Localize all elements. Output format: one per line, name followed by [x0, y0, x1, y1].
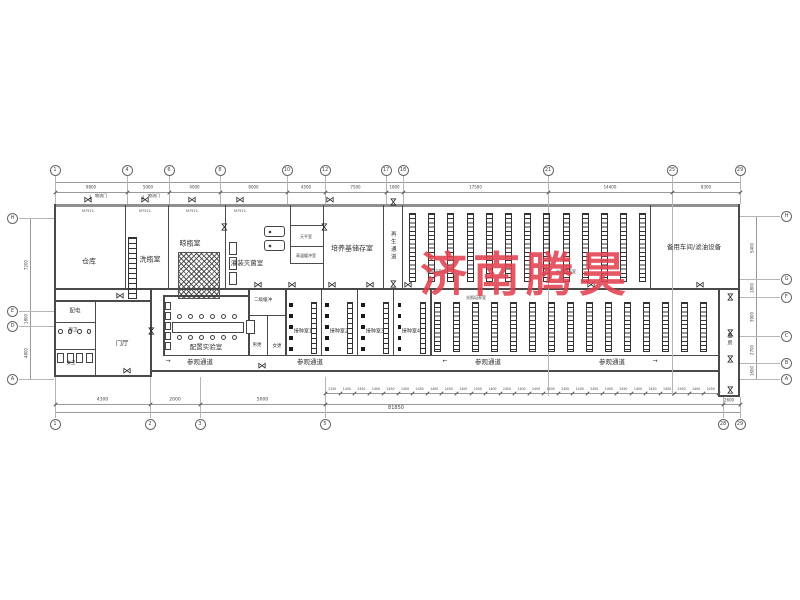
grid-bubble-top: 17	[381, 165, 392, 176]
lab-stool	[232, 314, 237, 319]
floor-plan-canvas: 济南腾昊 仓库 洗瓶室 晾瓶室 灌装灭菌室 天平室 高温缓冲室 培养基储存室 备…	[0, 0, 800, 600]
door-symbol: ⋈	[254, 282, 263, 291]
room-label-warehouse: 仓库	[82, 259, 96, 266]
lab-machine	[246, 320, 255, 334]
dimension-label: 1800	[750, 283, 755, 293]
storage-rack	[605, 302, 612, 352]
dim-tick	[469, 391, 473, 395]
grid-bubble-left: A	[7, 374, 18, 385]
door-symbol: ⋈	[84, 197, 93, 206]
room-label-secondary-buffer: 二级缓冲	[254, 299, 272, 304]
door-symbol: ⋈	[258, 363, 267, 372]
wall	[150, 370, 720, 372]
room-label-mens-toilet: 男卫	[69, 329, 78, 334]
dimension-label: 4000	[189, 185, 199, 190]
drying-area-hatch	[178, 252, 220, 299]
dimension-label: 1400	[634, 387, 642, 391]
dimension-label: 2450	[416, 387, 424, 391]
dimension-label: 8300	[701, 185, 711, 190]
storage-rack	[510, 302, 517, 352]
dimension-bottom-right: 2600	[724, 398, 734, 403]
dimension-label: 2450	[357, 387, 365, 391]
clean-bench	[398, 314, 402, 318]
dim-tick	[367, 391, 371, 395]
room-label-bottle-drying: 晾瓶室	[180, 241, 201, 248]
grid-bubble-top: 10	[282, 165, 293, 176]
grid-line	[19, 311, 54, 312]
dimension-label: 2000	[169, 398, 180, 403]
door-symbol: ⋈	[696, 282, 705, 291]
lab-stool	[221, 314, 226, 319]
grid-line	[200, 377, 201, 418]
grid-bubble-bottom: 5	[320, 419, 331, 430]
wall	[55, 204, 740, 207]
wall	[54, 375, 152, 377]
door-code: M7521	[234, 209, 246, 213]
storage-rack	[548, 302, 555, 352]
dimension-label: 2450	[590, 387, 598, 391]
equipment-panel	[165, 322, 171, 330]
dimension-label: 2450	[678, 387, 686, 391]
grid-bubble-top: 12	[320, 165, 331, 176]
grid-bubble-top: 25	[667, 165, 678, 176]
clean-bench	[398, 336, 402, 340]
door-symbol: ⋈	[123, 368, 132, 377]
storage-rack	[586, 302, 593, 352]
grid-line	[150, 377, 151, 418]
wall	[383, 205, 384, 289]
wall	[168, 205, 169, 289]
lab-stool	[232, 335, 237, 340]
clean-bench	[289, 347, 293, 351]
clean-bench	[325, 314, 329, 318]
grid-line	[740, 379, 780, 380]
annotation-logistics-door-2: 物流门	[148, 194, 160, 198]
dimension-label: 1400	[488, 387, 496, 391]
dimension-label: 2450	[648, 387, 656, 391]
grid-line	[19, 326, 54, 327]
wall	[393, 288, 394, 355]
grid-bubble-left: D	[7, 321, 18, 332]
grid-line	[740, 297, 780, 298]
dim-tick	[600, 391, 604, 395]
room-label-inoculation-1: 接种室1	[294, 330, 312, 335]
room-label-medium-storage: 培养基储存室	[331, 246, 373, 253]
door-code: M7521	[139, 209, 151, 213]
door-symbol: ⋈	[141, 197, 150, 206]
dimension-label: 1400	[576, 387, 584, 391]
equipment-panel	[165, 342, 171, 350]
dimension-label: 1400	[372, 387, 380, 391]
dimension-label: 7200	[24, 259, 29, 269]
clean-bench	[325, 303, 329, 307]
dimension-label: 1400	[459, 387, 467, 391]
wall	[163, 355, 718, 356]
wall	[718, 395, 740, 397]
grid-bubble-bottom: 29	[735, 419, 746, 430]
door-symbol: ⋈	[219, 223, 228, 232]
clean-bench	[361, 303, 365, 307]
lab-bench	[172, 322, 244, 333]
dimension-label: 5000	[143, 185, 153, 190]
corridor-label-visitor-4: 参观通道	[599, 359, 625, 366]
dim-tick	[498, 391, 502, 395]
door-symbol: ⋈	[388, 280, 397, 289]
clean-bench	[289, 314, 293, 318]
door-symbol: ⋈	[319, 223, 328, 232]
clean-bench	[289, 336, 293, 340]
wall	[95, 300, 96, 376]
grid-line	[19, 218, 54, 219]
wall	[55, 412, 740, 413]
door-symbol: ⋈	[404, 282, 413, 291]
door-symbol: ⋈	[725, 386, 734, 395]
dimension-label: 1400	[692, 387, 700, 391]
equipment-panel	[165, 332, 171, 340]
clean-bench	[289, 303, 293, 307]
wall	[323, 205, 324, 289]
grid-line	[740, 397, 741, 418]
dimension-label: 2450	[474, 387, 482, 391]
dimension-label: 2450	[561, 387, 569, 391]
grid-bubble-top: 4	[122, 165, 133, 176]
wall	[738, 204, 740, 397]
storage-rack	[681, 302, 688, 352]
grid-bubble-bottom: 1	[50, 419, 61, 430]
storage-rack	[491, 302, 498, 352]
door-symbol: ⋈	[116, 293, 125, 302]
door-symbol: ⋈	[146, 327, 155, 336]
dimension-label: 4300	[97, 398, 108, 403]
lab-stool	[210, 314, 215, 319]
wall	[290, 205, 291, 263]
wall	[718, 288, 720, 396]
dimension-label: 1400	[430, 387, 438, 391]
grid-line	[19, 379, 54, 380]
left-arrow-icon: ←	[442, 358, 447, 365]
grid-bubble-left: E	[7, 306, 18, 317]
wall	[55, 288, 740, 290]
equipment-panel	[165, 302, 171, 310]
wall	[54, 349, 96, 350]
clean-bench	[325, 336, 329, 340]
storage-rack	[529, 302, 536, 352]
storage-rack	[662, 302, 669, 352]
door-symbol: ⋈	[725, 329, 734, 338]
dimension-label: 2450	[707, 387, 715, 391]
grid-line	[740, 216, 780, 217]
wc-stall	[86, 353, 93, 363]
bottle-rack	[128, 237, 137, 299]
door-code: M7521	[82, 209, 94, 213]
wall	[54, 204, 56, 377]
dimension-label: 14400	[604, 185, 617, 190]
dimension-label: 4800	[24, 347, 29, 357]
wall	[672, 204, 673, 396]
corridor-label-regeneration: 再生通道	[389, 231, 395, 261]
grid-bubble-top: 29	[735, 165, 746, 176]
storage-rack	[643, 302, 650, 352]
grid-bubble-top: 6	[164, 165, 175, 176]
dimension-label: 1400	[605, 387, 613, 391]
room-label-spare-workshop: 备用车间/滤油设备	[667, 244, 721, 251]
storage-rack	[434, 302, 441, 352]
dimension-label: 1400	[517, 387, 525, 391]
lab-stool	[177, 314, 182, 319]
dimension-label: 2450	[503, 387, 511, 391]
dimension-label: 17500	[469, 185, 482, 190]
wall	[54, 300, 152, 302]
clean-bench	[361, 336, 365, 340]
clean-bench	[398, 325, 402, 329]
clean-bench	[325, 347, 329, 351]
door-symbol: ⋈	[326, 197, 335, 206]
wall	[290, 263, 323, 264]
equipment-panel	[229, 272, 237, 285]
grid-line	[740, 279, 780, 280]
dimension-total: 81850	[388, 405, 404, 411]
wall	[225, 205, 226, 289]
dim-tick	[338, 391, 342, 395]
grid-bubble-right: H	[781, 211, 792, 222]
urinal-fixture	[58, 329, 63, 334]
room-label-power-distribution: 配电	[69, 309, 80, 315]
dimension-label: 2450	[386, 387, 394, 391]
urinal-fixture	[77, 329, 82, 334]
grid-bubble-bottom: 2	[145, 419, 156, 430]
wall	[55, 182, 740, 183]
dimension-label: 2450	[445, 387, 453, 391]
door-symbol: ⋈	[328, 282, 337, 291]
culture-rack	[420, 302, 426, 354]
room-label-balance-room: 天平室	[300, 235, 312, 239]
dimension-label: 1400	[343, 387, 351, 391]
clean-bench	[398, 347, 402, 351]
storage-rack	[624, 302, 631, 352]
grid-line	[740, 336, 780, 337]
grid-bubble-top: 18	[398, 165, 409, 176]
wall	[267, 315, 268, 355]
right-arrow-icon: →	[165, 358, 170, 365]
room-label-inoculation-2: 接种室2	[330, 330, 348, 335]
lab-stool	[199, 314, 204, 319]
dimension-label: 2150	[328, 387, 336, 391]
urinal-fixture	[87, 329, 92, 334]
room-label-womens-toilet: 女卫	[67, 362, 76, 367]
dimension-label: 8000	[248, 185, 258, 190]
door-symbol: ⋈	[366, 282, 375, 291]
door-symbol: ⋈	[725, 355, 734, 364]
corridor-label-visitor-2: 参观通道	[297, 359, 323, 366]
equipment-panel	[165, 312, 171, 320]
grid-bubble-left: H	[7, 213, 18, 224]
door-symbol: ⋈	[725, 293, 734, 302]
door-symbol: ⋈	[188, 197, 197, 206]
grid-bubble-right: A	[781, 374, 792, 385]
room-label-high-temp-buffer: 高温缓冲室	[296, 254, 316, 258]
door-symbol: ⋈	[288, 282, 297, 291]
wall	[125, 205, 126, 289]
dimension-label: 1800	[389, 185, 399, 190]
door-symbol: ⋈	[388, 198, 397, 207]
grid-bubble-right: G	[781, 274, 792, 285]
grid-bubble-right: F	[781, 292, 792, 303]
wall	[285, 288, 287, 355]
lab-stool	[188, 335, 193, 340]
grid-bubble-bottom: 28	[718, 419, 729, 430]
dimension-label: 2450	[619, 387, 627, 391]
grid-line	[325, 377, 326, 418]
clean-bench	[325, 325, 329, 329]
lab-stool	[177, 335, 182, 340]
grid-bubble-top: 1	[50, 165, 61, 176]
corridor-label-visitor-3: 参观通道	[475, 359, 501, 366]
dim-tick	[629, 391, 633, 395]
clean-bench	[361, 325, 365, 329]
door-symbol: ⋈	[236, 197, 245, 206]
dimension-label: 1800	[24, 313, 29, 323]
room-label-bottle-washing: 洗瓶室	[140, 257, 161, 264]
wall	[54, 322, 96, 323]
lab-stool	[221, 335, 226, 340]
grid-bubble-top: 21	[543, 165, 554, 176]
room-label-filling-sterilizing: 灌装灭菌室	[231, 260, 264, 267]
clean-bench	[289, 325, 293, 329]
dimension-label: 1400	[663, 387, 671, 391]
dimension-label: 7500	[350, 185, 360, 190]
sterilizer-machine	[264, 226, 285, 237]
grid-bubble-bottom: 3	[195, 419, 206, 430]
grid-line	[740, 363, 780, 364]
wall	[650, 205, 651, 289]
clean-bench	[398, 303, 402, 307]
storage-rack	[453, 302, 460, 352]
room-label-foyer: 门厅	[116, 340, 129, 347]
storage-rack	[700, 302, 707, 352]
wc-stall	[57, 353, 64, 363]
wc-stall	[76, 353, 83, 363]
clean-bench	[361, 314, 365, 318]
wall	[30, 218, 31, 379]
storage-rack	[472, 302, 479, 352]
dimension-label: 1400	[401, 387, 409, 391]
wall	[357, 288, 358, 355]
clean-bench	[361, 347, 365, 351]
door-code: M7521	[186, 209, 198, 213]
dimension-label: 5000	[257, 398, 268, 403]
watermark-text: 济南腾昊	[420, 252, 632, 299]
storage-rack	[639, 213, 646, 282]
dimension-label: 4500	[301, 185, 311, 190]
grid-bubble-right: B	[781, 358, 792, 369]
annotation-logistics-door-1: 物流门	[95, 194, 107, 198]
lab-stool	[199, 335, 204, 340]
grid-bubble-top: 8	[215, 165, 226, 176]
grid-bubble-right: C	[781, 331, 792, 342]
dimension-label: 9800	[86, 185, 96, 190]
dimension-label: 3900	[750, 311, 755, 321]
lab-stool	[188, 314, 193, 319]
sterilizer-machine	[264, 240, 285, 251]
storage-rack	[409, 213, 416, 282]
room-label-preparation-lab: 配置实验室	[190, 344, 223, 351]
wall	[402, 205, 403, 289]
dimension-label: 1600	[750, 366, 755, 376]
corridor-label-visitor-1: 参观通道	[187, 359, 213, 366]
room-label-womens-changing: 女更	[273, 345, 282, 350]
wall	[290, 246, 323, 247]
dimension-label: 2450	[532, 387, 540, 391]
right-arrow-icon: →	[652, 358, 657, 365]
room-label-mens-changing: 男更	[253, 344, 262, 349]
equipment-panel	[229, 242, 237, 255]
storage-rack	[567, 302, 574, 352]
room-label-inoculation-4: 接种室4	[402, 330, 420, 335]
dimension-label: 1400	[547, 387, 555, 391]
wall	[321, 288, 322, 355]
dimension-label: 2700	[750, 344, 755, 354]
dimension-label: 5400	[750, 242, 755, 252]
lab-stool	[210, 335, 215, 340]
room-label-inoculation-3: 接种室3	[366, 330, 384, 335]
grid-line	[55, 377, 56, 418]
